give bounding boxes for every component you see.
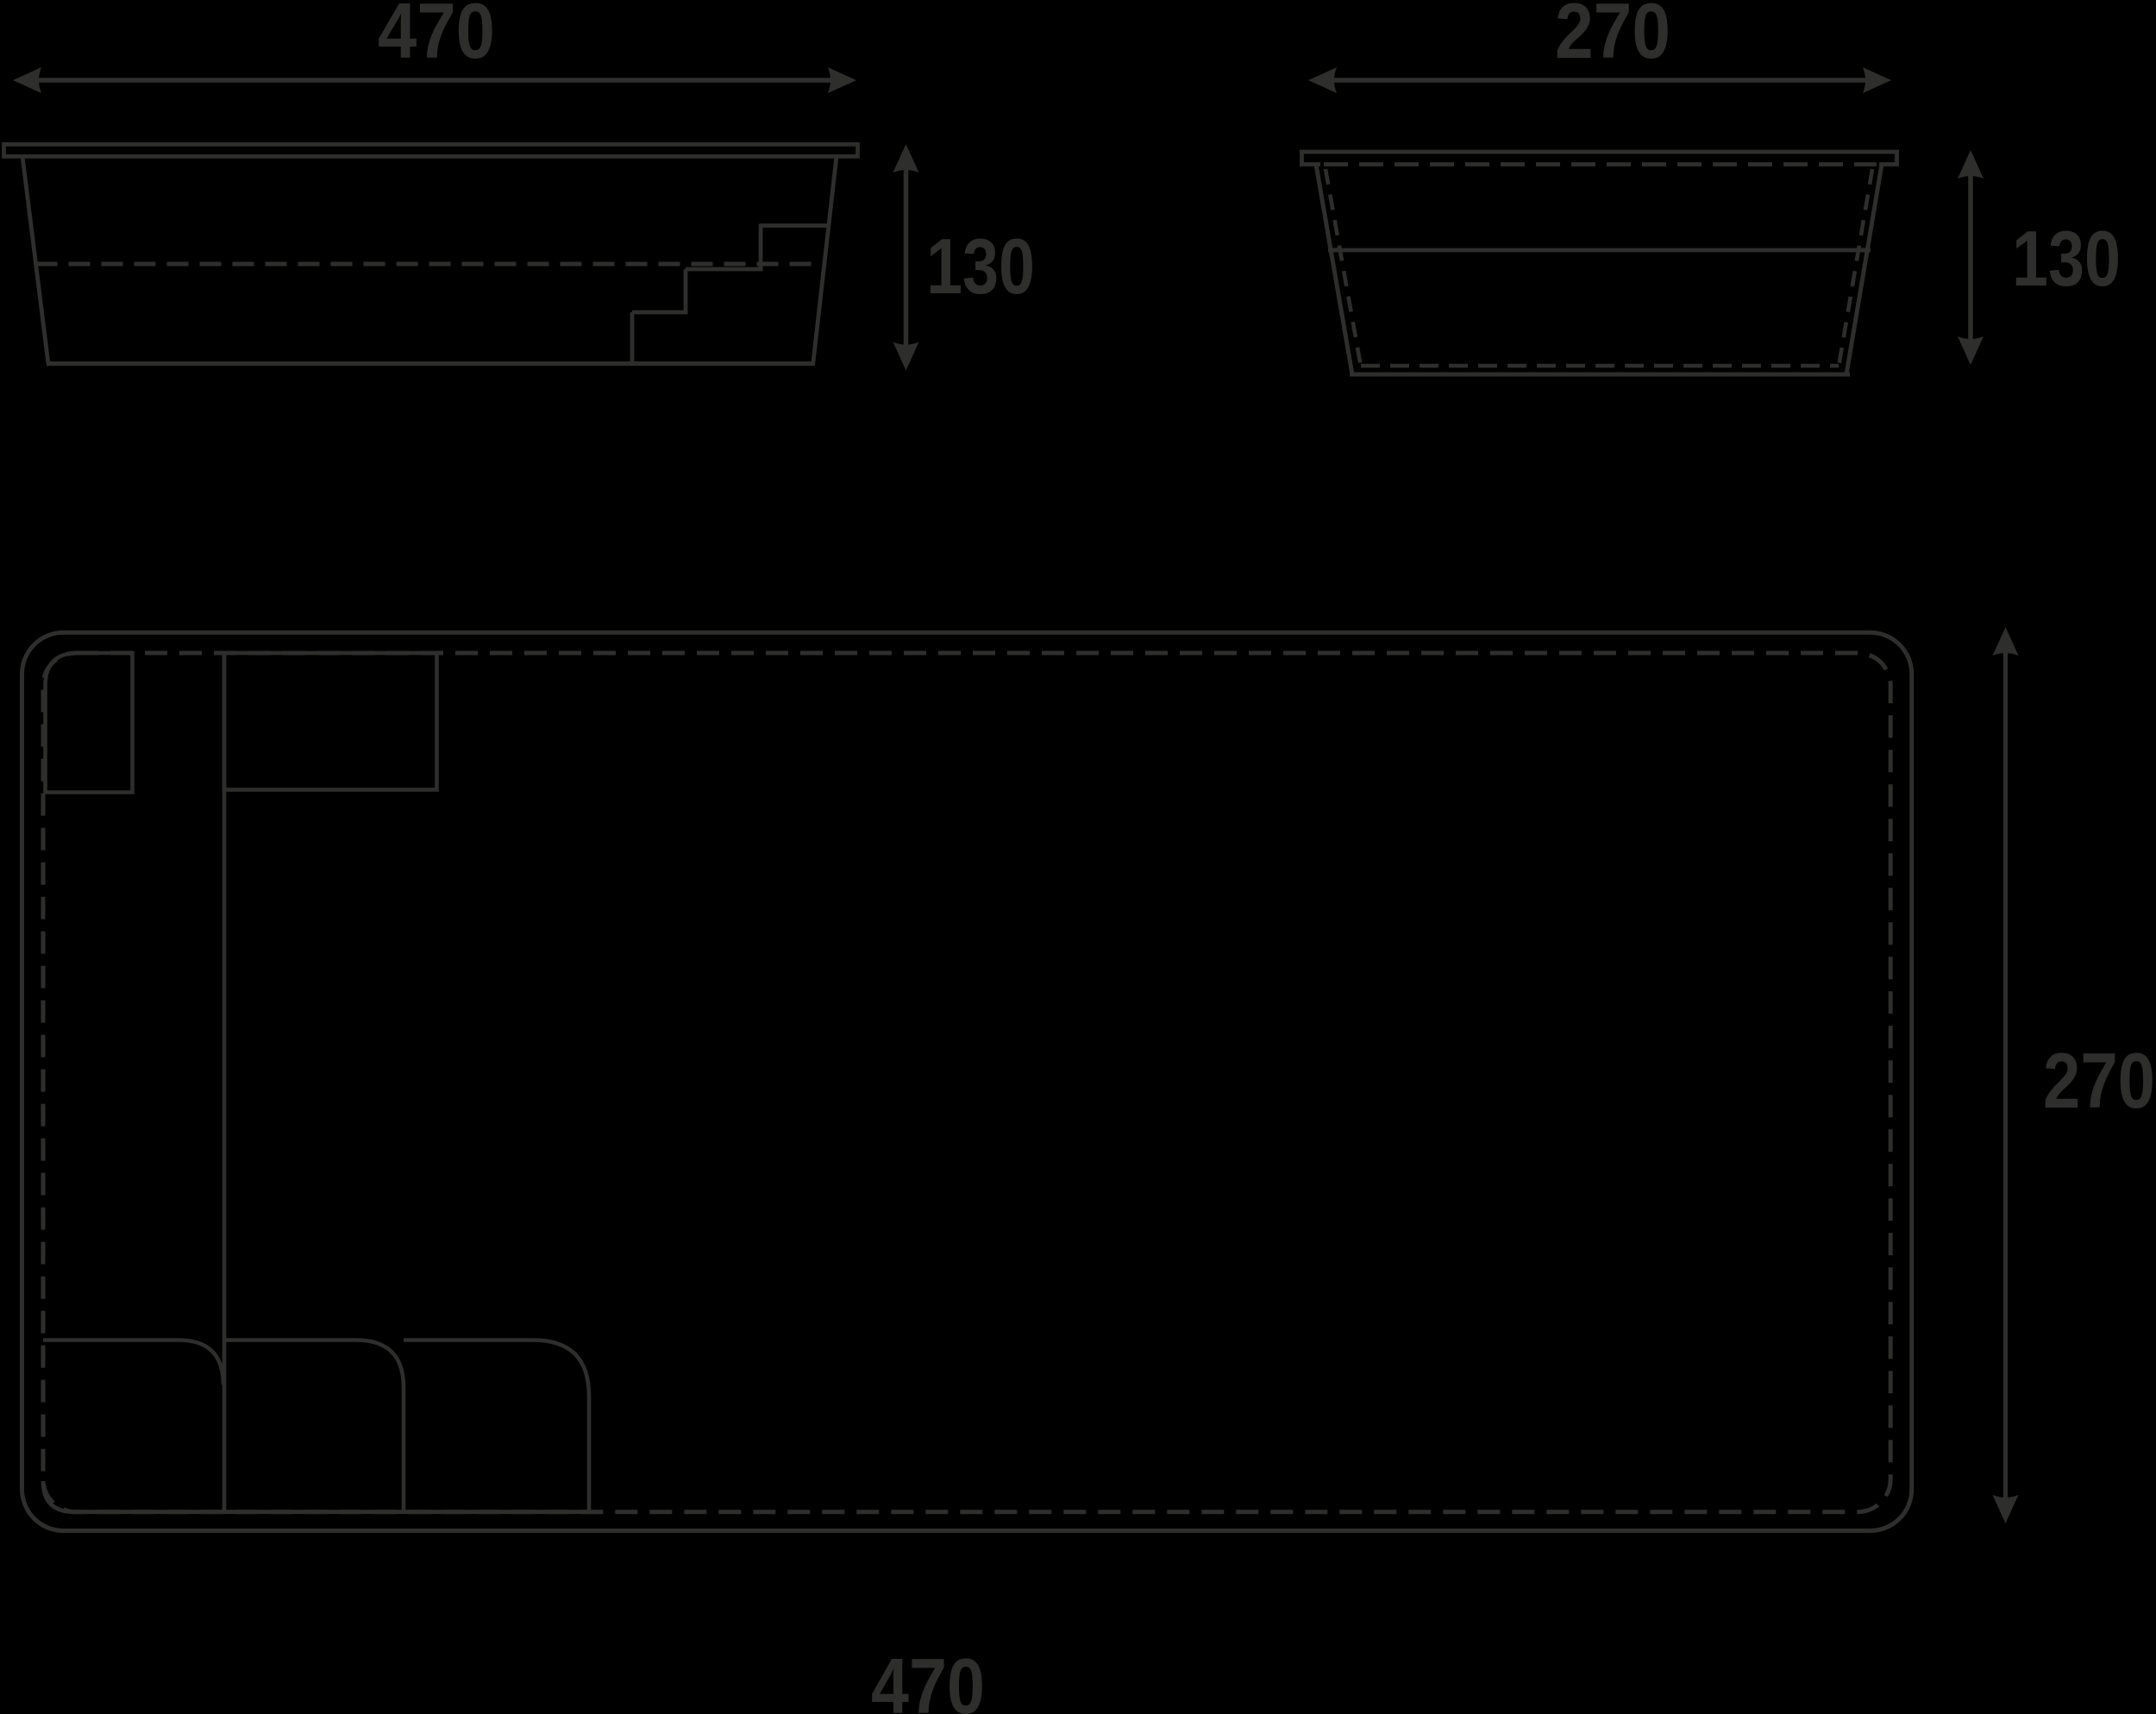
svg-text:470: 470 xyxy=(871,1643,985,1714)
svg-text:270: 270 xyxy=(1555,0,1670,75)
svg-text:270: 270 xyxy=(2043,1038,2155,1125)
svg-text:470: 470 xyxy=(378,0,495,75)
svg-text:130: 130 xyxy=(926,223,1035,311)
svg-text:130: 130 xyxy=(2012,216,2121,303)
